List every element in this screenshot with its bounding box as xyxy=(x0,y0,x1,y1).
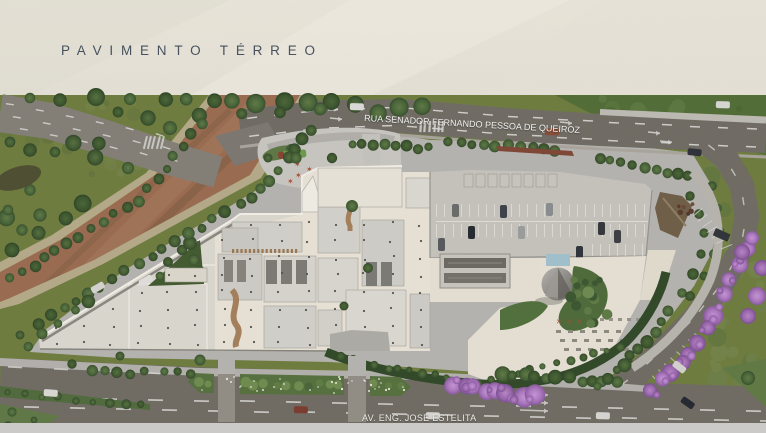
svg-text:AV. ENG. JOSÉ ESTELITA: AV. ENG. JOSÉ ESTELITA xyxy=(362,413,476,423)
svg-text:PAVIMENTO TÉRREO: PAVIMENTO TÉRREO xyxy=(61,43,323,58)
